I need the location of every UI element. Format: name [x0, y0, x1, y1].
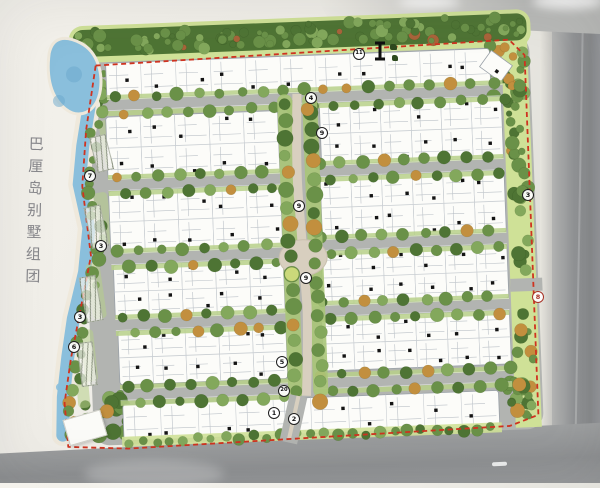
- plan-marker-11: 11: [353, 48, 365, 60]
- plan-marker-9: 9: [316, 127, 328, 139]
- plan-marker-8: 8: [532, 291, 544, 303]
- plan-marker-1: 1: [268, 407, 280, 419]
- plan-marker-6: 6: [68, 341, 80, 353]
- markers-layer: 11497393983652012: [0, 0, 600, 483]
- plan-marker-3: 3: [95, 240, 107, 252]
- section-cut-icon: [372, 41, 388, 61]
- plant-legend-icon: [392, 55, 398, 61]
- plant-legend-icon: [390, 44, 397, 50]
- plan-marker-20: 20: [278, 385, 290, 397]
- plan-marker-5: 5: [276, 356, 288, 368]
- photo-background: { "title": { "text": "巴厘岛别墅组团" }, "plan_…: [0, 0, 600, 483]
- plan-marker-3: 3: [522, 189, 534, 201]
- plan-marker-9: 9: [293, 200, 305, 212]
- plan-marker-2: 2: [288, 413, 300, 425]
- plan-marker-3: 3: [74, 311, 86, 323]
- plan-marker-7: 7: [84, 170, 96, 182]
- plan-marker-4: 4: [305, 92, 317, 104]
- plan-marker-9: 9: [300, 272, 312, 284]
